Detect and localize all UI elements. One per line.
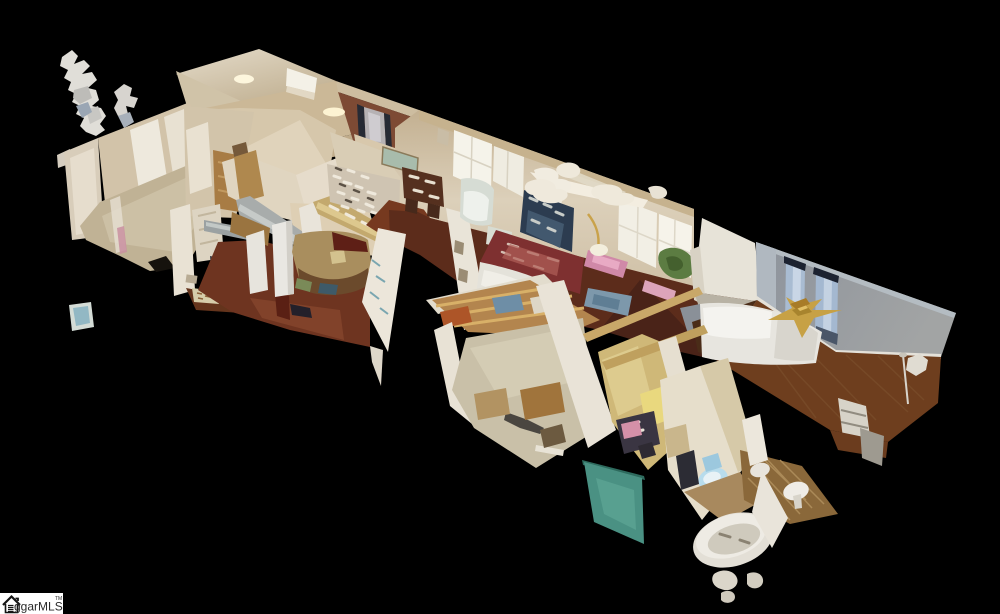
svg-text:TM: TM [55, 596, 62, 602]
